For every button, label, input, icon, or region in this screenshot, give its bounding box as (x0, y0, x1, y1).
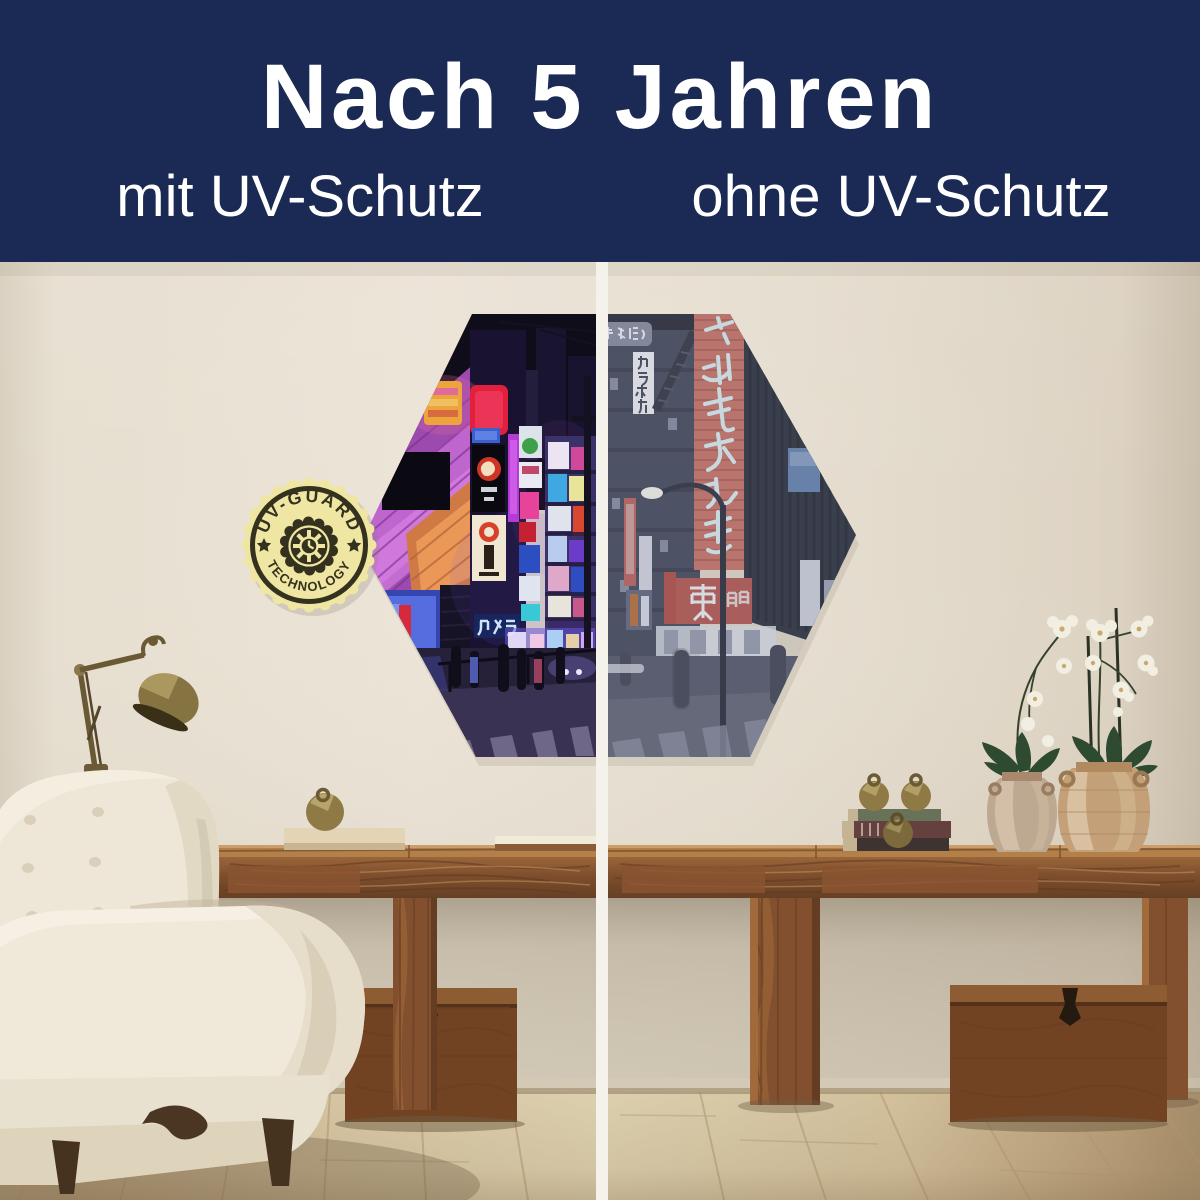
svg-text:mit UV-Schutz: mit UV-Schutz (116, 164, 483, 229)
svg-text:Nach 5 Jahren: Nach 5 Jahren (261, 46, 939, 148)
svg-text:ohne UV-Schutz: ohne UV-Schutz (691, 164, 1110, 229)
